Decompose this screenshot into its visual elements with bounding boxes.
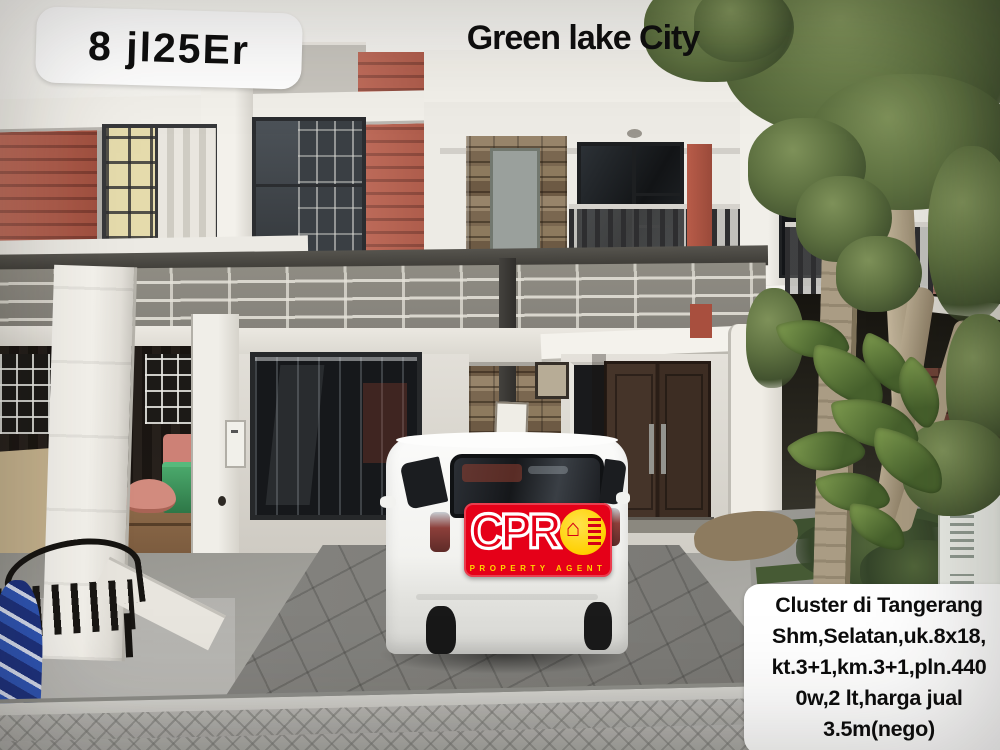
car-wheel-right (584, 602, 612, 650)
neighbor-window-grille-b (145, 354, 197, 424)
car-mirror-left (380, 496, 396, 508)
door-handle-right (661, 424, 666, 474)
car-bumper-crease (416, 594, 598, 600)
window-transom-bar (256, 184, 362, 187)
info-line-4: 0w,2 lt,harga jual (746, 683, 1000, 714)
car-taillight-left (430, 512, 450, 552)
agency-tagline: PROPERTY AGENT (464, 564, 612, 573)
door-handle-left (649, 424, 654, 474)
agency-logo: CPR ⌂ PROPERTY AGENT (464, 503, 612, 577)
info-line-1: Cluster di Tangerang (746, 590, 1000, 621)
porch-lamp-dot (627, 129, 642, 138)
car-wheel-left (426, 606, 456, 654)
window-top-strip (255, 357, 417, 361)
window-reflection-light (266, 365, 325, 505)
agency-brand-letters: CPR (470, 506, 557, 555)
seal-characters (588, 518, 601, 545)
info-line-3: kt.3+1,km.3+1,pln.440 (746, 652, 1000, 683)
window-reflection-sky (528, 466, 568, 474)
listing-code-badge: 8 jl25Er (35, 6, 303, 89)
info-line-5: 3.5m(nego) (746, 714, 1000, 745)
intercom-box (225, 420, 246, 468)
location-title: Green lake City (428, 14, 738, 62)
framed-picture (535, 362, 569, 399)
window-pane-grid (298, 121, 362, 261)
listing-photo: CPR ⌂ PROPERTY AGENT 8 jl25Er Green lake… (0, 0, 1000, 750)
car-mirror-right (616, 492, 630, 504)
red-pillar-tip (690, 304, 712, 338)
intercom-slit (231, 430, 238, 433)
location-title-text: Green lake City (467, 19, 700, 58)
info-line-2: Shm,Selatan,uk.8x18, (746, 621, 1000, 652)
window-bar-1 (636, 193, 680, 196)
keyhole-dot (218, 496, 226, 506)
tree-canopy-4 (928, 146, 1000, 322)
car-roof-spoiler (396, 432, 618, 448)
property-info-box: Cluster di Tangerang Shm,Selatan,uk.8x18… (744, 584, 1000, 750)
agency-logo-seal: ⌂ (560, 509, 606, 555)
house-icon: ⌂ (566, 517, 581, 541)
listing-code-text: 8 jl25Er (87, 22, 250, 74)
door-panel-right (665, 374, 703, 510)
window-reflection-buildings (462, 464, 522, 482)
